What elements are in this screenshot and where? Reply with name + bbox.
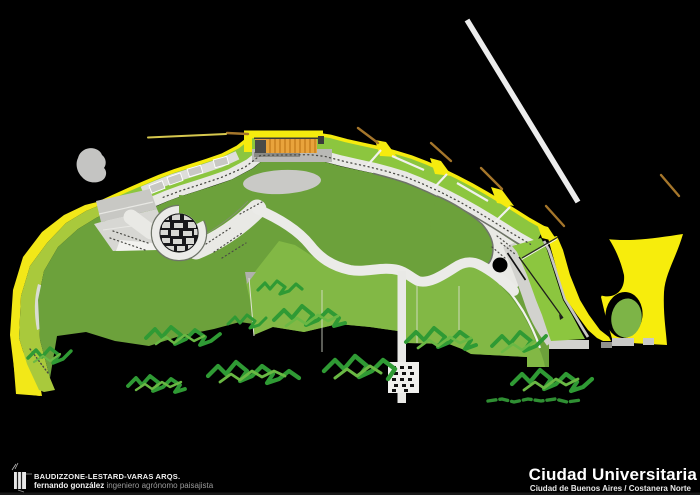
svg-text:fernando gonzález ingeniero ag: fernando gonzález ingeniero agrónomo pai…	[34, 481, 214, 490]
svg-text:Ciudad de Buenos Aires / Costa: Ciudad de Buenos Aires / Costanera Norte	[530, 484, 692, 493]
svg-text:Ciudad Universitaria: Ciudad Universitaria	[529, 465, 698, 484]
svg-text:BAUDIZZONE-LESTARD-VARAS ARQS.: BAUDIZZONE-LESTARD-VARAS ARQS.	[34, 472, 180, 481]
